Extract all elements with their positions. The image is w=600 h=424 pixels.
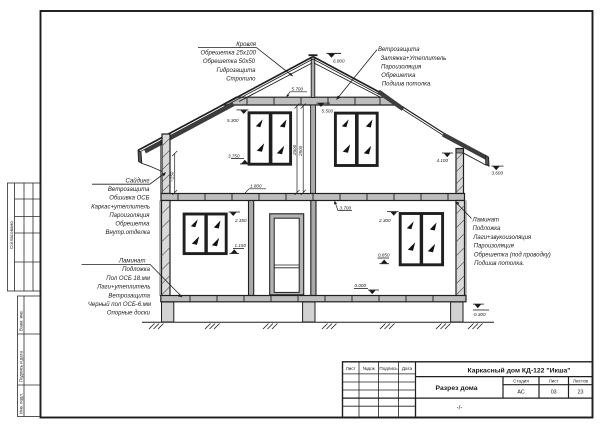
svg-text:3.750: 3.750 (228, 153, 240, 158)
svg-text:0.850: 0.850 (378, 253, 390, 258)
svg-text:3.600: 3.600 (492, 171, 504, 176)
svg-text:Черный пол ОСБ-6.мм: Черный пол ОСБ-6.мм (88, 301, 151, 308)
svg-text:Обрешетка: Обрешетка (115, 222, 150, 228)
svg-text:5.300: 5.300 (227, 118, 239, 123)
svg-text:Дата: Дата (402, 366, 413, 371)
svg-text:Каркасный дом КД-122 "Икша": Каркасный дом КД-122 "Икша" (467, 367, 570, 375)
svg-text:1.800: 1.800 (250, 184, 262, 189)
svg-text:Ламинат: Ламинат (472, 218, 500, 224)
svg-text:-/-: -/- (457, 406, 463, 412)
svg-text:-0.300: -0.300 (473, 312, 486, 317)
svg-text:Ветрозащита: Ветрозащита (108, 293, 150, 299)
svg-text:Ветрозащита: Ветрозащита (108, 187, 150, 193)
svg-text:Пароизоляция: Пароизоляция (381, 64, 422, 70)
svg-text:Взам. инв.: Взам. инв. (19, 310, 24, 331)
svg-text:Опорные доски: Опорные доски (107, 311, 151, 317)
svg-text:Кровля: Кровля (236, 42, 257, 48)
svg-text:Обрешетка (под проводку): Обрешетка (под проводку) (474, 252, 551, 258)
svg-text:Разрез дома: Разрез дома (436, 385, 478, 392)
svg-text:2500: 2500 (298, 145, 303, 157)
svg-text:Лист: Лист (346, 366, 357, 371)
svg-text:6.800: 6.800 (333, 59, 345, 64)
svg-text:АС: АС (517, 390, 524, 396)
svg-text:Пароизоляция: Пароизоляция (474, 244, 515, 250)
svg-text:Лист: Лист (549, 379, 560, 384)
svg-text:5.700: 5.700 (292, 87, 304, 92)
svg-text:Лаги+утеплитель: Лаги+утеплитель (96, 285, 150, 291)
svg-text:Подпись: Подпись (379, 366, 398, 371)
svg-text:23: 23 (578, 390, 584, 396)
svg-text:№док: №док (363, 366, 376, 371)
svg-text:Обрешетка 50х50: Обрешетка 50х50 (203, 59, 256, 65)
svg-text:Подложка: Подложка (122, 267, 151, 273)
svg-text:Каркас+утеплитель: Каркас+утеплитель (91, 204, 150, 210)
svg-text:Внутр.отделка: Внутр.отделка (105, 230, 150, 236)
svg-text:Пол ОСБ 18.мм: Пол ОСБ 18.мм (106, 276, 150, 282)
svg-text:03: 03 (551, 390, 557, 396)
svg-text:1.150: 1.150 (235, 243, 247, 248)
svg-text:0.000: 0.000 (355, 283, 367, 288)
svg-text:3.700: 3.700 (340, 205, 352, 210)
svg-text:Стропило: Стропило (226, 76, 256, 82)
svg-text:Сайдинг: Сайдинг (126, 178, 150, 185)
svg-text:2.350: 2.350 (234, 218, 247, 223)
svg-text:Согласовано: Согласовано (9, 221, 14, 249)
svg-text:Стадия: Стадия (513, 379, 529, 384)
svg-text:Гидрозащита: Гидрозащита (216, 68, 256, 74)
svg-text:2.300: 2.300 (378, 218, 391, 223)
svg-text:2600: 2600 (292, 144, 297, 156)
svg-text:Лаги+звукоизоляция: Лаги+звукоизоляция (472, 235, 532, 241)
svg-text:Обшивка ОСБ: Обшивка ОСБ (109, 196, 149, 202)
svg-text:5.500: 5.500 (322, 108, 334, 113)
svg-text:Подпись и дата: Подпись и дата (19, 350, 24, 382)
svg-text:Инв. подл.: Инв. подл. (19, 393, 24, 414)
svg-text:Обрешетка: Обрешетка (381, 73, 416, 79)
svg-text:Подшив потолка.: Подшив потолка. (474, 261, 524, 267)
svg-text:Обрешетка 25х100: Обрешетка 25х100 (201, 51, 257, 57)
svg-text:Затяжка+Утеплитель: Затяжка+Утеплитель (381, 56, 447, 62)
svg-text:Ветрозащита: Ветрозащита (378, 47, 420, 53)
svg-text:Листов: Листов (573, 379, 588, 384)
svg-text:4.100: 4.100 (437, 158, 449, 163)
svg-text:Подшив потолка.: Подшив потолка. (382, 82, 432, 88)
svg-text:Ламинат: Ламинат (118, 259, 146, 265)
svg-text:Пароизоляция: Пароизоляция (109, 213, 150, 219)
svg-text:~150: ~150 (170, 171, 175, 182)
svg-text:Подложка: Подложка (473, 226, 502, 232)
